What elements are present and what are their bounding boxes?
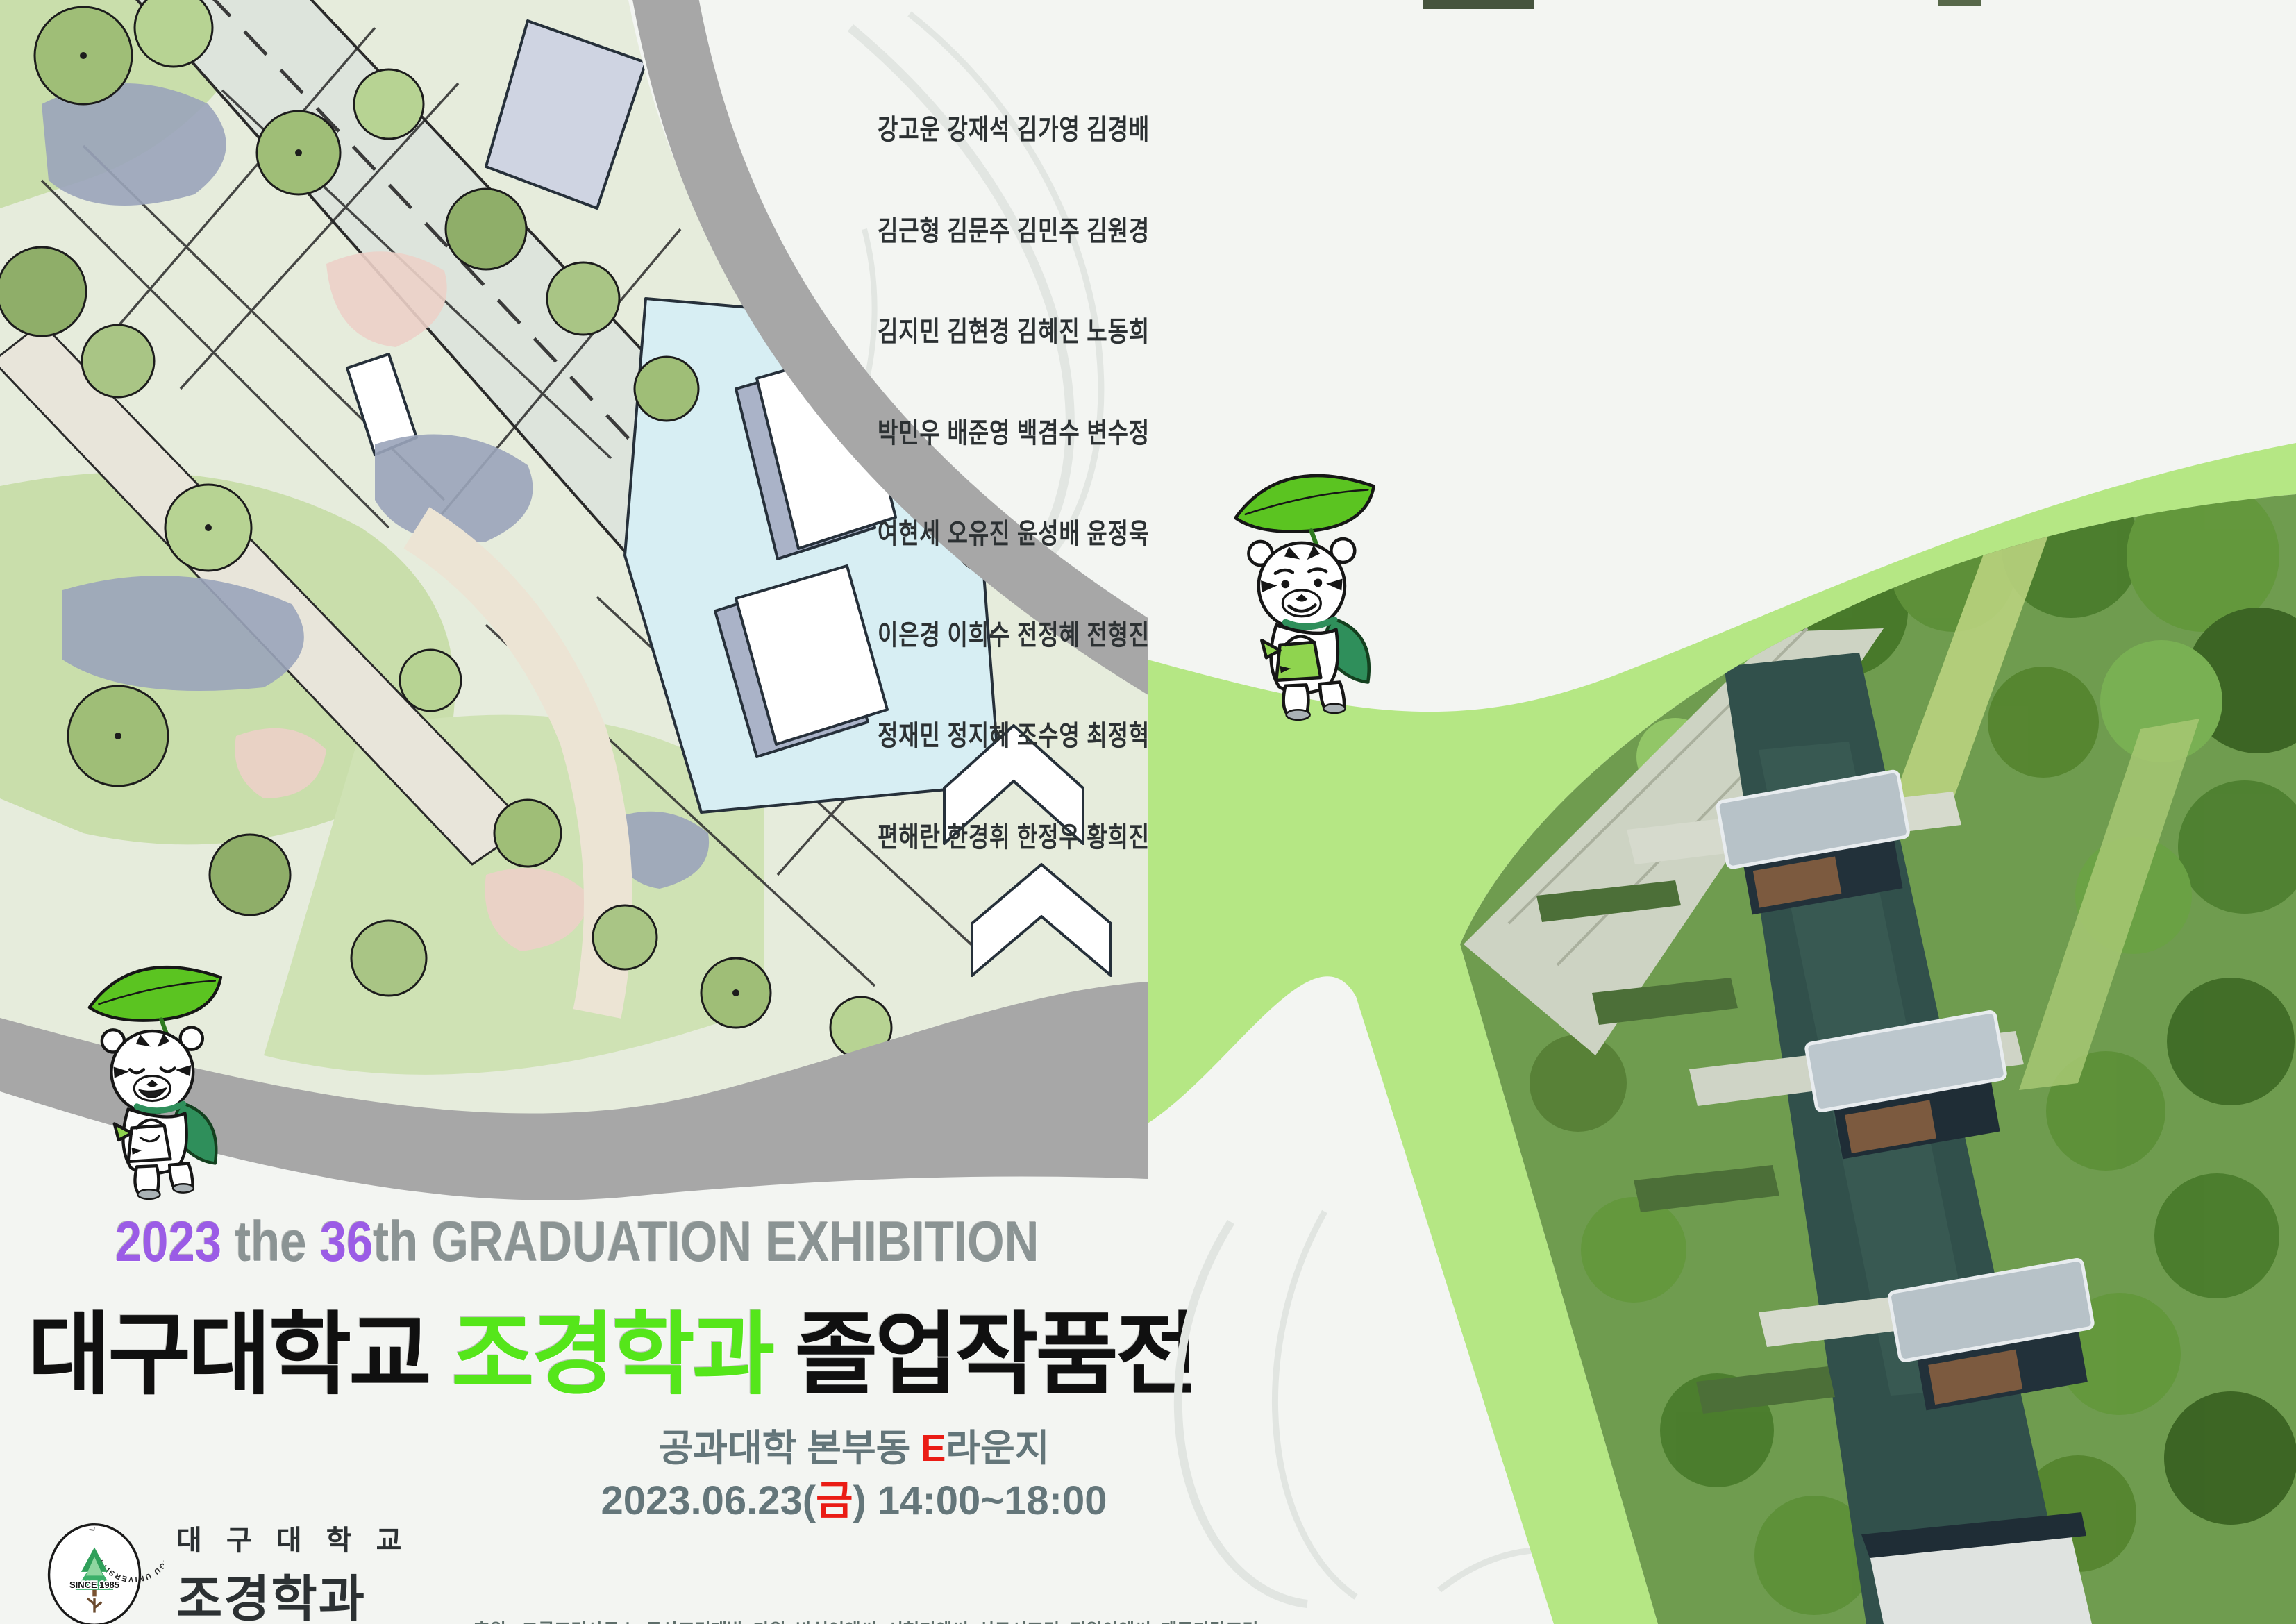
department-logo: LANDSCAPE ARCHITECTURE DAEGU UNIVERSITY … [25, 1518, 410, 1624]
roster-line: 강고운 강재석 김가영 김경배 [863, 113, 1150, 147]
department-emblem: LANDSCAPE ARCHITECTURE DAEGU UNIVERSITY … [25, 1523, 164, 1624]
venue-datetime: 공과대학 본부동 E라운지 2023.06.23(금) 14:00~18:00 [548, 1422, 1159, 1527]
photo-edge-sliver [1938, 0, 1981, 6]
venue-line: 공과대학 본부동 E라운지 [548, 1422, 1159, 1475]
roster-line: 편해란 한경휘 한정우 황희진 [863, 821, 1150, 855]
roster-line: 김근형 김문주 김민주 김원경 [863, 215, 1150, 249]
logo-university-name: 대 구 대 학 교 [176, 1518, 410, 1558]
tiger-mascot-right [1217, 450, 1399, 722]
ribbon-and-photo-art [1148, 0, 2296, 1624]
tiger-mascot-left [54, 943, 262, 1201]
right-page: 2023 the 36th GRADUATION EXHIBITION 대구대학… [1148, 0, 2296, 1624]
datetime-line: 2023.06.23(금) 14:00~18:00 [548, 1475, 1159, 1527]
roster-line: 여현세 오유진 윤성배 윤정욱 [863, 517, 1150, 551]
photo-edge-sliver [1423, 0, 1534, 9]
left-page: 강고운 강재석 김가영 김경배 김근형 김문주 김민주 김원경 김지민 김현경 … [0, 0, 1148, 1624]
weekday-highlight: 금 [816, 1478, 853, 1523]
title-korean: 대구대학교 조경학과 졸업작품전 [28, 1282, 1120, 1412]
exhibition-poster: 강고운 강재석 김가영 김경배 김근형 김문주 김민주 김원경 김지민 김현경 … [0, 0, 2296, 1624]
title-english: 2023 the 36th GRADUATION EXHIBITION [115, 1209, 1032, 1275]
roster-line: 정재민 정지혜 조수영 최정혁 [863, 719, 1150, 753]
lounge-letter: E [921, 1428, 946, 1469]
department-highlight: 조경학과 [451, 1304, 772, 1405]
title-edition-number: 36 [320, 1210, 374, 1273]
roster-line: 김지민 김현경 김혜진 노동희 [863, 315, 1150, 349]
participant-roster: 강고운 강재석 김가영 김경배 김근형 김문주 김민주 김원경 김지민 김현경 … [863, 46, 1150, 921]
svg-text:SINCE 1985: SINCE 1985 [69, 1580, 119, 1590]
roster-line: 이은경 이희수 전정혜 전형진 [863, 619, 1150, 653]
logo-department-name: 조경학과 [176, 1558, 410, 1624]
title-year: 2023 [115, 1210, 221, 1273]
title-exhibition: GRADUATION EXHIBITION [431, 1210, 1039, 1273]
roster-line: 박민우 배준영 백겸수 변수정 [863, 417, 1150, 451]
